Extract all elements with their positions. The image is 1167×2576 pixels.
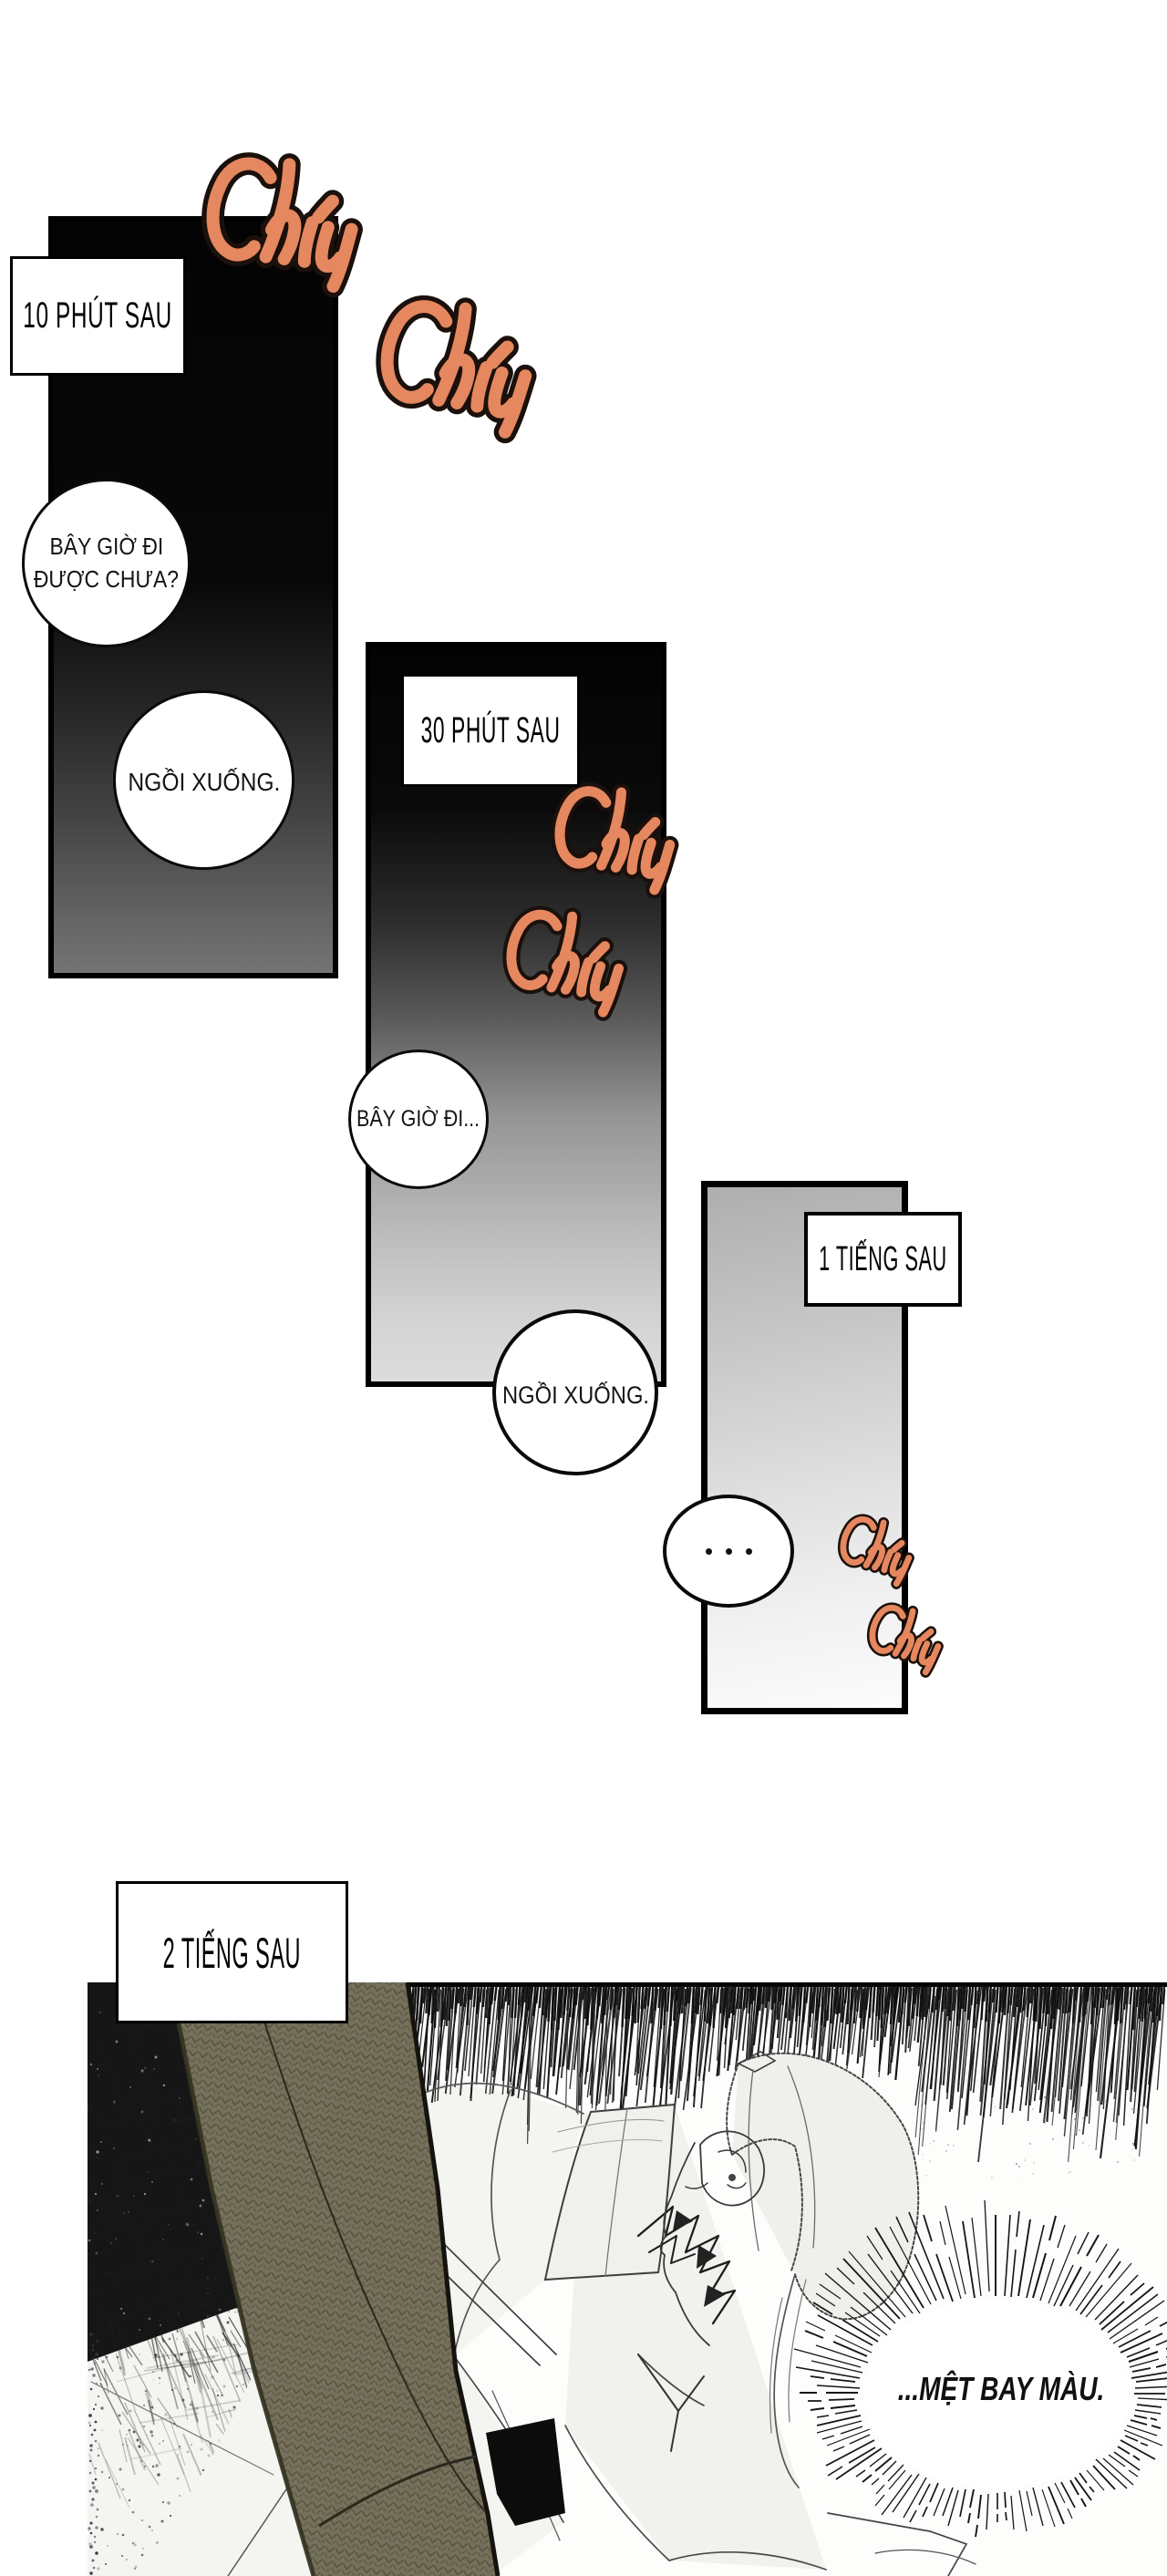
svg-text:...MỆT BAY MÀU.: ...MỆT BAY MÀU.	[898, 2371, 1105, 2407]
